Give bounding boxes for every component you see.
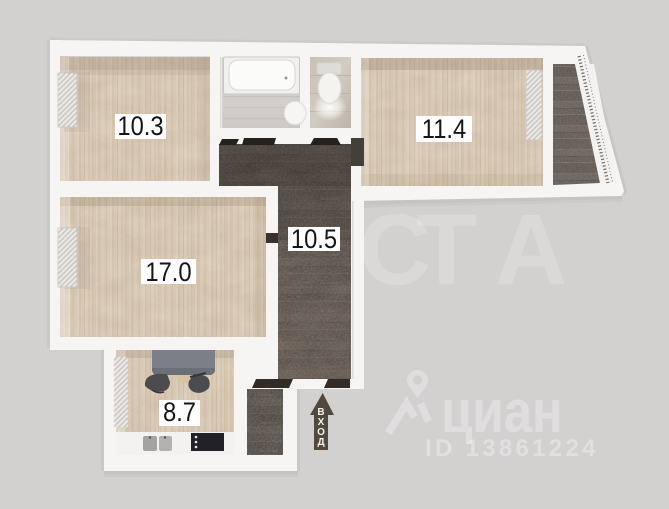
svg-text:17.0: 17.0 xyxy=(145,258,191,288)
svg-text:А: А xyxy=(495,194,567,306)
svg-text:11.4: 11.4 xyxy=(422,115,466,145)
svg-text:8.7: 8.7 xyxy=(163,398,196,428)
svg-text:10.5: 10.5 xyxy=(291,225,337,255)
svg-text:Т: Т xyxy=(416,194,477,306)
svg-text:Д: Д xyxy=(317,437,324,448)
svg-text:10.3: 10.3 xyxy=(117,112,163,142)
svg-text:ID 13861224: ID 13861224 xyxy=(425,435,599,462)
